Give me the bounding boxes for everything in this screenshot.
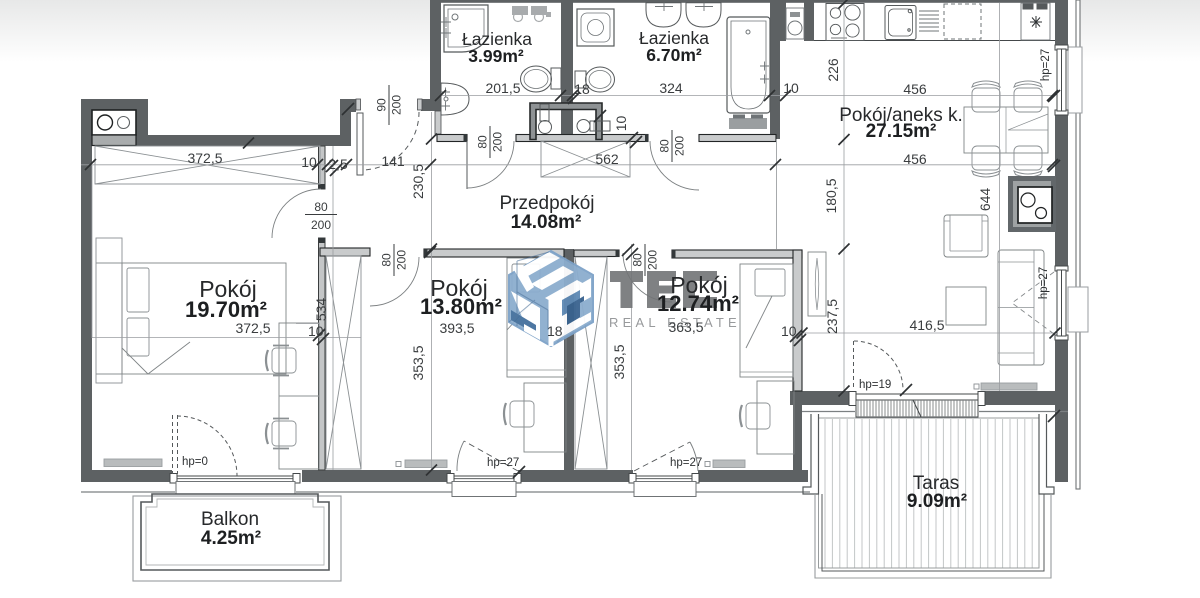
svg-text:200: 200: [646, 250, 660, 270]
svg-text:141: 141: [381, 153, 405, 169]
svg-text:80: 80: [631, 253, 645, 267]
svg-text:10: 10: [781, 323, 797, 339]
svg-text:456: 456: [903, 151, 927, 167]
svg-text:hp=27: hp=27: [487, 457, 519, 469]
svg-text:Balkon: Balkon: [201, 509, 259, 530]
svg-text:324: 324: [659, 80, 683, 96]
svg-text:90: 90: [375, 98, 389, 112]
svg-text:393,5: 393,5: [439, 320, 474, 336]
svg-text:hp=19: hp=19: [859, 379, 891, 391]
svg-text:13.80m²: 13.80m²: [420, 294, 502, 319]
svg-text:4.25m²: 4.25m²: [201, 528, 261, 549]
svg-text:3.99m²: 3.99m²: [468, 46, 524, 66]
svg-text:200: 200: [311, 218, 331, 232]
svg-text:10: 10: [308, 323, 324, 339]
svg-text:hp=27: hp=27: [1038, 267, 1050, 299]
svg-text:372,5: 372,5: [187, 150, 222, 166]
svg-text:10: 10: [613, 116, 629, 132]
svg-text:2,5: 2,5: [328, 156, 348, 172]
svg-text:200: 200: [491, 132, 505, 152]
svg-text:201,5: 201,5: [485, 80, 520, 96]
svg-text:200: 200: [390, 95, 404, 115]
svg-text:200: 200: [395, 250, 409, 270]
svg-text:18: 18: [547, 323, 563, 339]
svg-text:hp=0: hp=0: [182, 456, 208, 468]
svg-text:27.15m²: 27.15m²: [866, 121, 937, 142]
svg-text:644: 644: [977, 188, 993, 212]
svg-text:200: 200: [673, 136, 687, 156]
svg-text:Przedpokój: Przedpokój: [499, 193, 594, 214]
svg-text:hp=27: hp=27: [1040, 49, 1052, 81]
svg-text:80: 80: [314, 200, 328, 214]
svg-text:19.70m²: 19.70m²: [185, 297, 267, 322]
svg-text:562: 562: [595, 151, 619, 167]
svg-text:372,5: 372,5: [235, 320, 270, 336]
svg-text:416,5: 416,5: [909, 317, 944, 333]
svg-text:180,5: 180,5: [823, 178, 839, 213]
svg-text:80: 80: [476, 135, 490, 149]
svg-text:80: 80: [380, 253, 394, 267]
svg-text:18: 18: [574, 81, 590, 97]
svg-text:12.74m²: 12.74m²: [657, 291, 739, 316]
svg-text:456: 456: [903, 81, 927, 97]
svg-text:6.70m²: 6.70m²: [646, 45, 702, 65]
svg-text:10: 10: [783, 80, 799, 96]
svg-text:9.09m²: 9.09m²: [907, 491, 967, 512]
svg-text:14.08m²: 14.08m²: [511, 212, 582, 233]
svg-text:80: 80: [658, 139, 672, 153]
svg-text:353,5: 353,5: [611, 344, 627, 379]
svg-text:10: 10: [301, 154, 317, 170]
svg-text:230,5: 230,5: [410, 164, 426, 199]
svg-text:363,5: 363,5: [668, 319, 703, 335]
svg-text:226: 226: [825, 58, 841, 82]
svg-text:237,5: 237,5: [824, 299, 840, 334]
svg-text:hp=27: hp=27: [670, 457, 702, 469]
svg-text:353,5: 353,5: [410, 345, 426, 380]
svg-text:534: 534: [313, 298, 329, 322]
